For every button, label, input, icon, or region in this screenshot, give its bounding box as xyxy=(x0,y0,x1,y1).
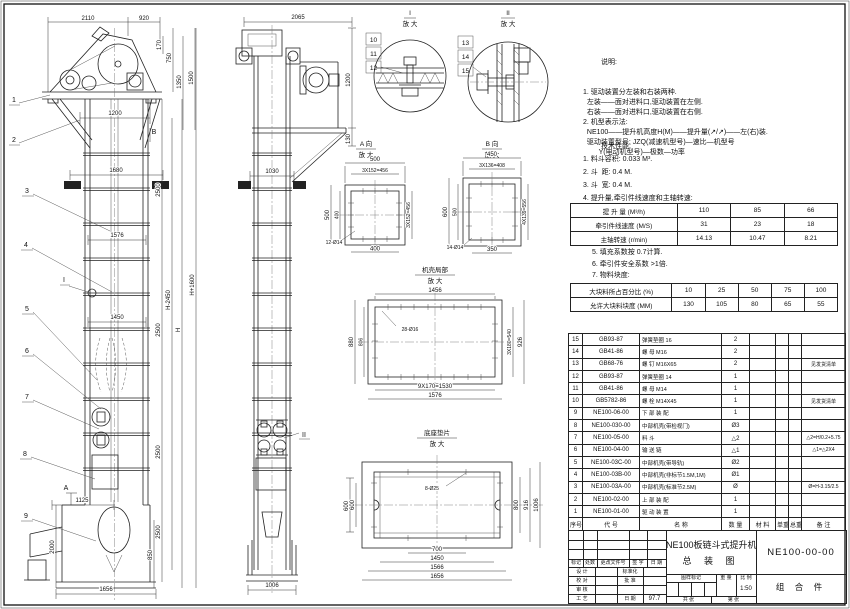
table-cell: NE100-04-00 xyxy=(583,444,640,456)
part-number: 7 xyxy=(25,394,29,401)
table-cell: NE100-02-00 xyxy=(583,493,640,505)
table-cell: 螺 母 M14 xyxy=(640,383,722,395)
table-cell: GB5782-86 xyxy=(583,395,640,407)
table-row: 15GB93-87弹簧垫圈 162 xyxy=(569,334,846,346)
table-cell: 75 xyxy=(771,284,804,298)
table-cell: 大块料所占百分比 (%) xyxy=(571,284,672,298)
part-number: 13 xyxy=(462,40,470,47)
tech-lines: 1. 料斗容积: 0.033 M³.2. 斗 距: 0.4 M.3. 斗 宽: … xyxy=(583,153,841,205)
part-number: 1 xyxy=(12,97,16,104)
view-subtitle: 放 大 xyxy=(428,276,443,285)
holes-label: 12-Ø14 xyxy=(326,240,343,246)
dim-label: 1576 xyxy=(110,233,124,239)
stamp-col-label: 重 量 xyxy=(716,576,736,581)
note-line: NE100——提升机高度H(M)——提升量(↗/↗)——左(右)装. xyxy=(583,128,841,138)
note-line: 左装——面对进料口,驱动装置在左侧. xyxy=(583,98,841,108)
table-cell: 2 xyxy=(569,493,583,505)
table-row: 10GB5782-86螺 栓 M14X451见发货清单 xyxy=(569,395,846,407)
table-cell xyxy=(776,506,789,518)
table-cell: 主轴转速 (r/min) xyxy=(571,232,678,246)
detail-view-ii: II 放 大 13 14 15 xyxy=(458,10,548,122)
table-cell xyxy=(776,456,789,468)
rev-col-label: 处数 xyxy=(583,561,597,566)
table-cell xyxy=(750,383,776,395)
dim-label: 1680 xyxy=(109,168,123,174)
part-number: 6 xyxy=(25,348,29,355)
table-cell xyxy=(776,432,789,444)
dim-label: 806 xyxy=(359,338,365,347)
rev-col-label: 日 期 xyxy=(647,561,666,566)
dim-label: 2500 xyxy=(156,183,162,197)
table-cell xyxy=(776,481,789,493)
table-cell: 85 xyxy=(731,204,784,218)
table-row: 14GB41-86螺 母 M162 xyxy=(569,346,846,358)
table-cell xyxy=(789,334,802,346)
table-cell xyxy=(750,432,776,444)
table-cell: 9 xyxy=(569,407,583,419)
dim-label: 850 xyxy=(148,549,154,560)
dim-label: 500 xyxy=(325,209,331,220)
table-row: 13GB68-76螺 钉 M16X652见发货清单 xyxy=(569,358,846,370)
dim-label: 916 xyxy=(524,499,530,510)
table-row: 提 升 量 (M³/h)1108566 xyxy=(571,204,838,218)
table-cell: Ø2 xyxy=(722,456,750,468)
table-cell: 1 xyxy=(722,407,750,419)
table-cell: Ø xyxy=(722,481,750,493)
table-cell: △1=△2X4 xyxy=(802,444,846,456)
performance-table: 提 升 量 (M³/h)1108566牵引件线速度 (M/S)312318主轴转… xyxy=(570,203,838,246)
table-cell: GB68-76 xyxy=(583,358,640,370)
table-cell: 螺 钉 M16X65 xyxy=(640,358,722,370)
table-cell xyxy=(802,383,846,395)
table-row: 6NE100-04-00输 送 链△1△1=△2X4 xyxy=(569,444,846,456)
drawing-sheet: 2110 920 170 750 1350 1500 1200 1680 157… xyxy=(0,0,850,609)
material-block-table: 大块料所占百分比 (%)10255075100允许大块料块度 (MM)13010… xyxy=(570,283,838,312)
table-cell: 允许大块料块度 (MM) xyxy=(571,298,672,312)
table-cell xyxy=(802,407,846,419)
table-cell: 代 号 xyxy=(583,518,640,530)
front-elevation-view: 2110 920 170 750 1350 1500 1200 1680 157… xyxy=(9,16,196,600)
dim-label: 350 xyxy=(487,247,498,253)
table-cell: 65 xyxy=(771,298,804,312)
section-a-marker: A xyxy=(64,485,69,492)
table-cell: 驱 动 装 置 xyxy=(640,506,722,518)
table-cell: 1 xyxy=(569,506,583,518)
detail-ii-marker: II xyxy=(302,432,306,439)
drawing-number: NE100-00-00 xyxy=(756,548,846,558)
table-cell xyxy=(750,506,776,518)
view-a: A 向 放 大 500 3X152=456 500 400 3X152=456 … xyxy=(325,139,412,253)
dim-label: 2000 xyxy=(50,540,56,554)
table-cell: 名 称 xyxy=(640,518,722,530)
dim-label: 2500 xyxy=(156,323,162,337)
table-cell xyxy=(789,456,802,468)
notes-title: 说明: xyxy=(601,58,841,68)
dim-label: 1450 xyxy=(110,315,124,321)
part-number: 5 xyxy=(25,306,29,313)
table-cell xyxy=(789,407,802,419)
table-cell: 1 xyxy=(722,506,750,518)
role-label: 标准化 xyxy=(617,570,643,575)
table-cell xyxy=(776,395,789,407)
table-cell xyxy=(776,420,789,432)
side-elevation-view: II 2065 1200 130 1030 600 1006 xyxy=(236,15,356,595)
table-cell: 见发货清单 xyxy=(802,395,846,407)
table-cell: 单重 xyxy=(776,518,789,530)
table-cell: 13 xyxy=(569,358,583,370)
table-cell: GB93-87 xyxy=(583,370,640,382)
dim-label: 1125 xyxy=(76,498,90,504)
part-number: 12 xyxy=(370,65,378,72)
dim-label: 1566 xyxy=(430,565,444,571)
part-number: 8 xyxy=(23,451,27,458)
table-cell xyxy=(750,334,776,346)
part-number: 3 xyxy=(25,188,29,195)
dim-label: 1576 xyxy=(428,393,442,399)
table-cell: 中部机壳(非标节1.5M,1M) xyxy=(640,469,722,481)
table-cell: 7 xyxy=(569,432,583,444)
drawing-title-line1: NE100板链斗式提升机 xyxy=(666,541,756,550)
holes-label: 14-Ø14 xyxy=(447,245,464,251)
part-number: 10 xyxy=(370,37,378,44)
view-title: A 向 xyxy=(360,139,372,148)
table-cell: △2=H/0.2+5.75 xyxy=(802,432,846,444)
table-cell xyxy=(789,346,802,358)
table-cell: 输 送 链 xyxy=(640,444,722,456)
note-line: 5. 填充系数按 0.7计算. xyxy=(592,247,832,259)
part-number: 9 xyxy=(24,513,28,520)
table-row: 2NE100-02-00上 部 装 配1 xyxy=(569,493,846,505)
table-cell: 数 量 xyxy=(722,518,750,530)
note-line: 6. 牵引件安全系数 >1倍. xyxy=(592,259,832,271)
table-cell xyxy=(789,444,802,456)
dim-label: 1656 xyxy=(99,587,113,593)
note-line: 1. 料斗容积: 0.033 M³. xyxy=(583,153,841,166)
table-cell: NE100-06-00 xyxy=(583,407,640,419)
table-row: 序号代 号名 称数 量材 料单重总重备 注 xyxy=(569,518,846,530)
dim-label: 500 xyxy=(453,208,459,217)
rev-col-label: 签 字 xyxy=(629,561,647,566)
title-block: 标记 处数 更改文件号 签 字 日 期 设 计 标准化 校 对 批 准 审 核 … xyxy=(568,530,847,604)
rev-col-label: 更改文件号 xyxy=(597,561,629,566)
note-line: 右装——面对进料口,驱动装置在右侧. xyxy=(583,108,841,118)
table-cell: 12 xyxy=(569,370,583,382)
tech-title: 技术性能: xyxy=(601,140,841,153)
table-cell: 螺 母 M16 xyxy=(640,346,722,358)
dim-label: 800 xyxy=(514,499,520,510)
part-number: 11 xyxy=(370,51,377,58)
stamp-col-label: 比 例 xyxy=(736,576,756,581)
table-cell: 55 xyxy=(804,298,837,312)
table-cell: 105 xyxy=(705,298,738,312)
table-cell xyxy=(750,493,776,505)
table-cell: 31 xyxy=(677,218,730,232)
part-number: 4 xyxy=(24,242,28,249)
table-cell xyxy=(802,370,846,382)
dim-label: 1500 xyxy=(189,71,195,85)
dim-label: 1200 xyxy=(346,73,352,87)
table-cell: 2 xyxy=(722,334,750,346)
note-line: 3. 斗 宽: 0.4 M. xyxy=(583,179,841,192)
table-cell: 上 部 装 配 xyxy=(640,493,722,505)
dim-label: 1200 xyxy=(108,111,122,117)
dim-label: 1656 xyxy=(430,574,444,580)
table-cell: 1 xyxy=(722,383,750,395)
table-cell: GB93-87 xyxy=(583,334,640,346)
table-cell: 18 xyxy=(784,218,837,232)
dim-label: 920 xyxy=(139,16,150,22)
role-label: 批 准 xyxy=(617,579,643,584)
table-cell: NE100-030-00 xyxy=(583,420,640,432)
table-cell: 牵引件线速度 (M/S) xyxy=(571,218,678,232)
table-cell: 材 料 xyxy=(750,518,776,530)
table-row: 允许大块料块度 (MM)130105806555 xyxy=(571,298,838,312)
table-cell xyxy=(750,420,776,432)
table-cell: 2 xyxy=(722,346,750,358)
table-cell: 1 xyxy=(722,370,750,382)
table-row: 7NE100-05-00料 斗△2△2=H/0.2+5.75 xyxy=(569,432,846,444)
role-label: 校 对 xyxy=(569,579,595,584)
table-cell: NE100-03C-00 xyxy=(583,456,640,468)
holes-label: 28-Ø16 xyxy=(402,327,419,333)
note-line: 1. 驱动装置分左装和右装两种. xyxy=(583,88,841,98)
part-number: 15 xyxy=(462,68,470,75)
table-cell: 备 注 xyxy=(802,518,846,530)
table-row: 5NE100-03C-00中部机壳(带导轨)Ø2 xyxy=(569,456,846,468)
table-cell: △2 xyxy=(722,432,750,444)
table-row: 1NE100-01-00驱 动 装 置1 xyxy=(569,506,846,518)
table-cell: 中部机壳(带导轨) xyxy=(640,456,722,468)
stamp-col-label: 图样标记 xyxy=(666,576,716,581)
table-row: 12GB93-87弹簧垫圈 141 xyxy=(569,370,846,382)
table-cell xyxy=(802,506,846,518)
sheet-number: 第 张 xyxy=(711,598,756,603)
view-title: 底座垫片 xyxy=(424,428,450,437)
table-cell: 中部机壳(标准节2.5M) xyxy=(640,481,722,493)
table-cell xyxy=(789,420,802,432)
sheets-total: 共 张 xyxy=(666,598,711,603)
dim-label: 2500 xyxy=(156,445,162,459)
table-cell xyxy=(802,493,846,505)
table-cell xyxy=(776,444,789,456)
table-cell xyxy=(750,370,776,382)
view-title: B 向 xyxy=(486,139,499,148)
table-cell xyxy=(776,334,789,346)
post-notes-block: 5. 填充系数按 0.7计算.6. 牵引件安全系数 >1倍.7. 物料块度: xyxy=(592,247,832,282)
table-cell: 8.21 xyxy=(784,232,837,246)
table-cell: 弹簧垫圈 14 xyxy=(640,370,722,382)
table-cell xyxy=(776,358,789,370)
dim-label: 1350 xyxy=(177,75,183,89)
role-label: 设 计 xyxy=(569,570,595,575)
detail-title: I xyxy=(409,10,411,17)
part-class-label: 组 合 件 xyxy=(756,583,846,592)
drawing-title-line2: 总 装 图 xyxy=(666,557,756,566)
role-label: 日 期 xyxy=(617,597,643,602)
table-cell xyxy=(802,346,846,358)
table-cell: Ø=H-3.15/2.5 xyxy=(802,481,846,493)
table-row: 主轴转速 (r/min)14.1310.478.21 xyxy=(571,232,838,246)
tech-block: 技术性能: 1. 料斗容积: 0.033 M³.2. 斗 距: 0.4 M.3.… xyxy=(583,140,841,205)
table-cell: 14.13 xyxy=(677,232,730,246)
part-leaders: 1 2 3 4 5 6 7 8 9 xyxy=(9,95,112,541)
dim-label: 1456 xyxy=(428,288,442,294)
table-cell xyxy=(750,469,776,481)
table-cell xyxy=(789,481,802,493)
dim-label: 3X180=540 xyxy=(507,329,513,355)
dim-label: 170 xyxy=(157,39,163,50)
dim-label: 450 xyxy=(487,152,498,158)
table-cell: 23 xyxy=(731,218,784,232)
table-cell: 11 xyxy=(569,383,583,395)
holes-label: 8-Ø25 xyxy=(425,486,439,492)
dim-label: 700 xyxy=(432,547,443,553)
note-line: 7. 物料块度: xyxy=(592,270,832,282)
table-cell: 10 xyxy=(569,395,583,407)
table-cell: Ø1 xyxy=(722,469,750,481)
table-cell xyxy=(789,358,802,370)
dim-label: 1450 xyxy=(430,556,444,562)
table-cell: 料 斗 xyxy=(640,432,722,444)
dim-label: 2500 xyxy=(156,525,162,539)
dim-label: H-2450 xyxy=(166,290,172,310)
role-label: 审 核 xyxy=(569,588,595,593)
table-cell: 15 xyxy=(569,334,583,346)
note-line: 2. 斗 距: 0.4 M. xyxy=(583,166,841,179)
view-subtitle: 放 大 xyxy=(430,439,445,448)
table-cell: GB41-86 xyxy=(583,383,640,395)
table-cell: 3 xyxy=(569,481,583,493)
table-cell xyxy=(802,420,846,432)
table-cell: 8 xyxy=(569,420,583,432)
table-row: 大块料所占百分比 (%)10255075100 xyxy=(571,284,838,298)
table-cell: 66 xyxy=(784,204,837,218)
bill-of-materials: 15GB93-87弹簧垫圈 16214GB41-86螺 母 M16213GB68… xyxy=(568,333,846,531)
dim-label: 3X152=456 xyxy=(406,202,412,228)
table-cell: NE100-03B-00 xyxy=(583,469,640,481)
table-cell xyxy=(750,407,776,419)
table-cell xyxy=(776,370,789,382)
table-cell xyxy=(750,444,776,456)
dim-label: H xyxy=(176,328,182,332)
table-cell: 中部机壳(带检视门) xyxy=(640,420,722,432)
dim-label: 600 xyxy=(350,499,356,510)
base-detail-view: 底座垫片 放 大 8-Ø25 600 800 916 1006 700 1450… xyxy=(350,428,545,580)
table-cell xyxy=(789,432,802,444)
view-title: 机壳局部 xyxy=(422,265,449,274)
table-cell xyxy=(750,481,776,493)
table-cell xyxy=(750,456,776,468)
table-row: 牵引件线速度 (M/S)312318 xyxy=(571,218,838,232)
table-cell xyxy=(789,370,802,382)
table-cell xyxy=(750,395,776,407)
table-cell xyxy=(750,346,776,358)
role-label: 工 艺 xyxy=(569,597,595,602)
table-cell: Ø3 xyxy=(722,420,750,432)
table-row: 11GB41-86螺 母 M141 xyxy=(569,383,846,395)
dim-label: 9X170=1530 xyxy=(418,384,453,390)
table-cell: 14 xyxy=(569,346,583,358)
table-cell xyxy=(776,383,789,395)
dim-label: 2065 xyxy=(291,15,305,21)
note-line: 2. 机型表示法: xyxy=(583,118,841,128)
table-cell: 总重 xyxy=(789,518,802,530)
table-cell: 6 xyxy=(569,444,583,456)
dim-label: 600 xyxy=(443,206,449,217)
dim-label: 400 xyxy=(335,211,341,220)
dim-label: 400 xyxy=(370,247,381,253)
table-cell: 100 xyxy=(804,284,837,298)
table-cell: NE100-05-00 xyxy=(583,432,640,444)
dim-label: 880 xyxy=(349,336,355,347)
dim-label: 3X136=408 xyxy=(479,163,505,169)
table-cell: 10.47 xyxy=(731,232,784,246)
table-cell: 1 xyxy=(722,395,750,407)
detail-subtitle: 放 大 xyxy=(403,19,418,28)
part-number: 2 xyxy=(12,137,16,144)
table-cell: GB41-86 xyxy=(583,346,640,358)
dim-label: 2110 xyxy=(82,16,96,22)
table-cell: 10 xyxy=(672,284,705,298)
rev-col-label: 标记 xyxy=(569,561,583,566)
detail-i-marker: I xyxy=(63,277,65,284)
dim-label: 926 xyxy=(518,336,524,347)
section-b-marker: B xyxy=(152,129,157,136)
table-cell: 提 升 量 (M³/h) xyxy=(571,204,678,218)
dim-label: 130 xyxy=(346,133,352,144)
dim-label: 4X139=556 xyxy=(522,199,528,225)
table-cell xyxy=(789,469,802,481)
table-row: 3NE100-03A-00中部机壳(标准节2.5M)ØØ=H-3.15/2.5 xyxy=(569,481,846,493)
table-cell: NE100-03A-00 xyxy=(583,481,640,493)
view-b: B 向 放 大 450 3X136=408 600 500 4X139=556 … xyxy=(443,139,528,253)
table-cell: 1 xyxy=(722,493,750,505)
table-cell: 弹簧垫圈 16 xyxy=(640,334,722,346)
table-cell: NE100-01-00 xyxy=(583,506,640,518)
dim-label: 1030 xyxy=(265,169,279,175)
table-cell: 4 xyxy=(569,469,583,481)
dim-label: 500 xyxy=(370,157,381,163)
post-lines: 5. 填充系数按 0.7计算.6. 牵引件安全系数 >1倍.7. 物料块度: xyxy=(592,247,832,282)
part-number: 14 xyxy=(462,54,470,61)
table-cell xyxy=(750,358,776,370)
table-cell: 50 xyxy=(738,284,771,298)
table-row: 8NE100-030-00中部机壳(带检视门)Ø3 xyxy=(569,420,846,432)
table-cell xyxy=(789,395,802,407)
dim-label: 3X152=456 xyxy=(362,168,388,174)
table-cell: 螺 栓 M14X45 xyxy=(640,395,722,407)
table-cell xyxy=(776,493,789,505)
table-cell xyxy=(802,334,846,346)
table-row: 4NE100-03B-00中部机壳(非标节1.5M,1M)Ø1 xyxy=(569,469,846,481)
dim-label: 1006 xyxy=(534,498,540,512)
drawing-scale: 1:50 xyxy=(736,586,756,592)
table-cell: 80 xyxy=(738,298,771,312)
table-cell: △1 xyxy=(722,444,750,456)
detail-view-i: I 放 大 10 11 12 xyxy=(366,10,446,112)
table-cell xyxy=(789,383,802,395)
table-cell xyxy=(789,493,802,505)
dim-label: H+1600 xyxy=(190,274,196,296)
table-cell: 5 xyxy=(569,456,583,468)
table-cell xyxy=(776,469,789,481)
dim-label: 1006 xyxy=(265,583,279,589)
table-cell: 2 xyxy=(722,358,750,370)
table-cell xyxy=(789,506,802,518)
table-cell xyxy=(802,456,846,468)
drawing-date: 97.7 xyxy=(643,596,666,602)
table-cell: 下 部 装 配 xyxy=(640,407,722,419)
